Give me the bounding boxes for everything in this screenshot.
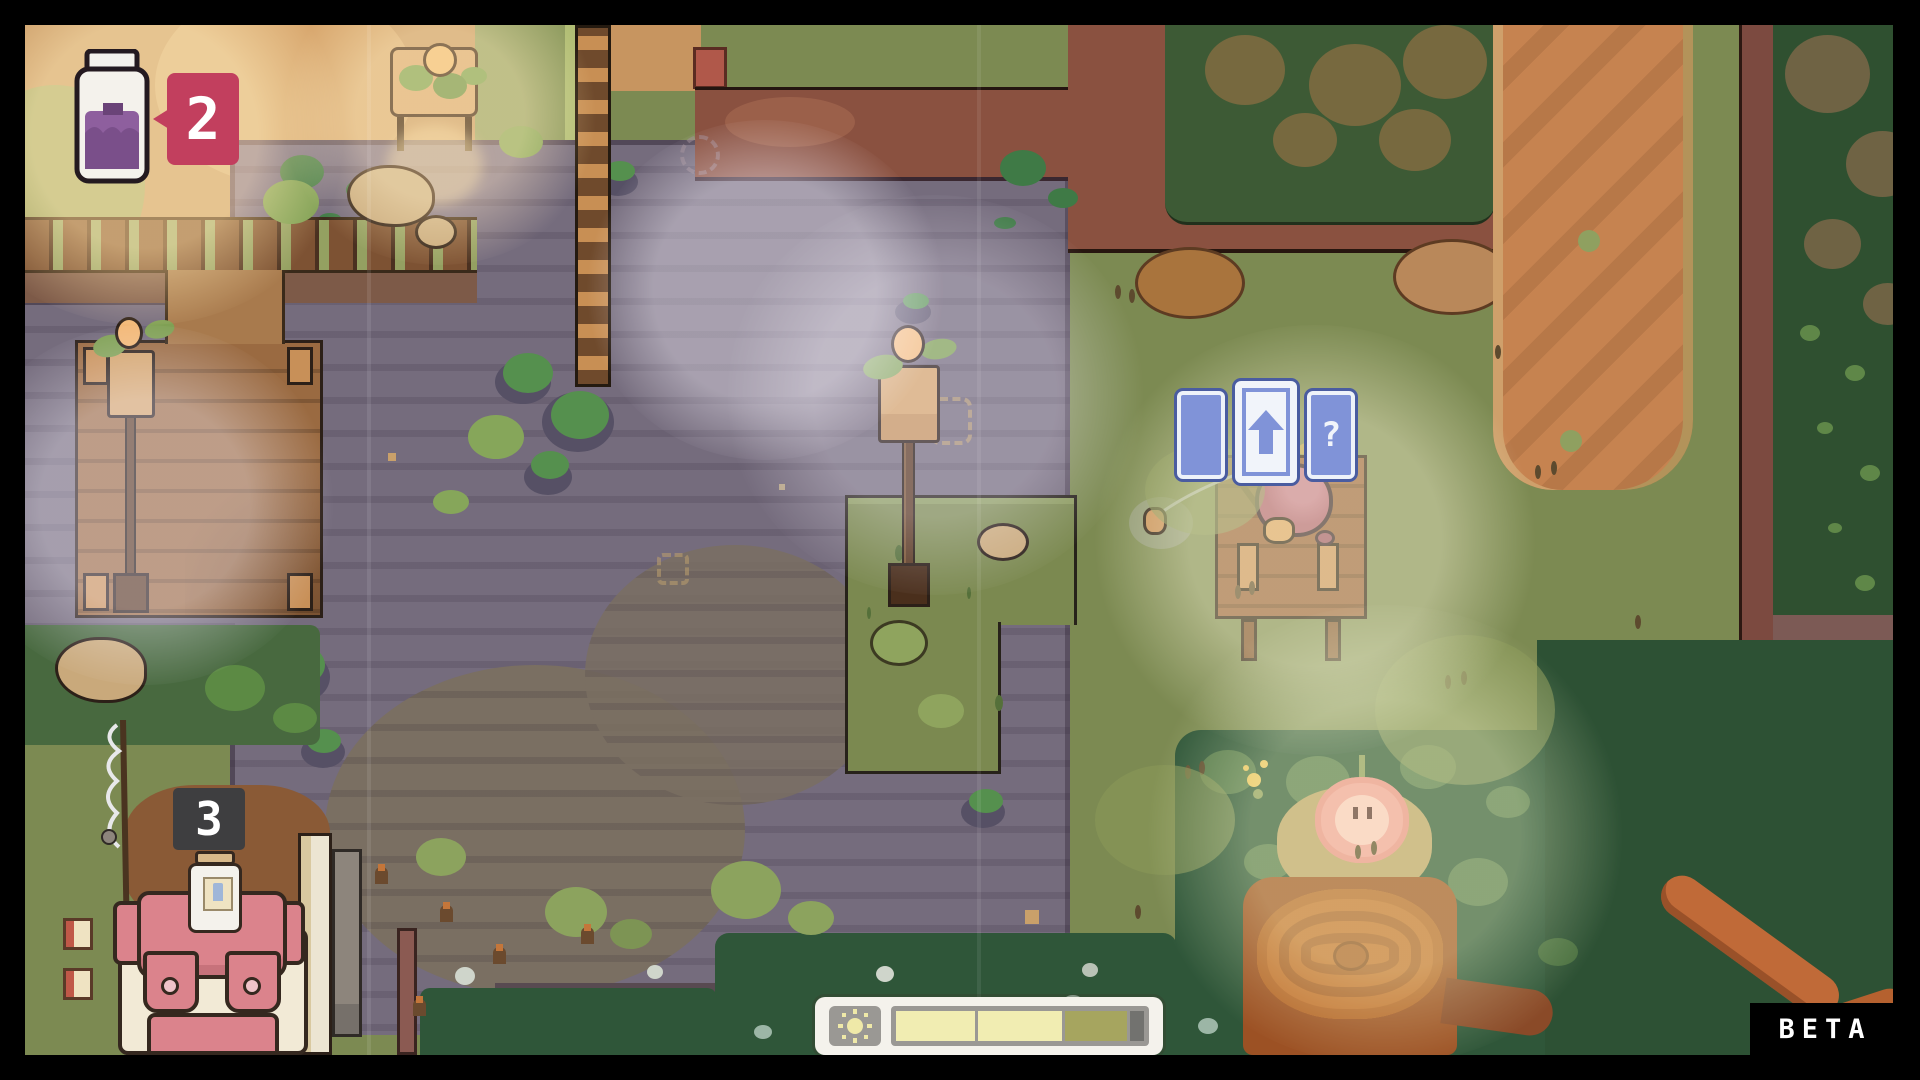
white-flower-dots — [455, 967, 475, 985]
yellow-flower — [1247, 773, 1261, 787]
water-speck — [1025, 910, 1039, 924]
boulder-topleft-small — [415, 215, 457, 249]
planter-peach — [423, 43, 457, 77]
beta-label: BETA — [1771, 1014, 1871, 1045]
character-foot — [1315, 530, 1335, 546]
cliff-strip-right — [1739, 25, 1773, 643]
camp-jar-label-glyph — [213, 883, 223, 901]
game-stage: 2 3 ? — [0, 0, 1920, 1080]
card-prompt: ? — [1173, 377, 1383, 507]
sprout-caps — [378, 864, 385, 871]
stack-marker-count: 3 — [195, 792, 223, 846]
backpack-button-left — [161, 977, 179, 995]
day-progress-fill — [896, 1011, 1144, 1041]
left-dock-path — [165, 270, 285, 344]
day-progress-segment-3 — [1130, 1011, 1144, 1041]
forest-right-clover — [1800, 325, 1820, 341]
gear-tag-2 — [63, 968, 93, 1000]
gear-tag-1 — [63, 918, 93, 950]
day-progress-segment-0 — [896, 1011, 975, 1041]
sun-tile — [829, 1006, 881, 1046]
day-progress-segment-1 — [978, 1011, 1062, 1041]
game-viewport: 2 3 ? — [25, 25, 1893, 1055]
blossom-eyes — [1353, 807, 1358, 819]
fishing-dock-leg-l — [1241, 619, 1257, 661]
grass-tufts-right — [1115, 285, 1121, 299]
dock-post-br — [287, 573, 313, 611]
hedge-bottom-right — [1537, 640, 1893, 1055]
beta-badge: BETA — [1750, 1003, 1893, 1055]
card-blank[interactable] — [1177, 391, 1225, 479]
dirt-patch-right — [1135, 247, 1245, 319]
dock-post-tr — [287, 347, 313, 385]
backpack-button-right — [243, 977, 261, 995]
inventory-toast: 2 — [67, 45, 297, 195]
center-island-top — [845, 495, 1077, 625]
hedge-clover-blobs — [1200, 750, 1256, 794]
mauve-picket — [397, 928, 417, 1055]
backpack-lower-pocket — [147, 1013, 279, 1055]
dock-lamp-pot — [107, 350, 155, 418]
island-seam-fix — [848, 615, 998, 629]
toast-count-badge: 2 — [167, 73, 239, 165]
day-progress-track — [891, 1006, 1149, 1046]
card-question[interactable]: ? — [1307, 391, 1355, 479]
blossom-center — [1335, 795, 1389, 845]
dock-post-bl — [83, 573, 109, 611]
jam-jar-icon — [73, 49, 151, 187]
card-inner-frame — [1242, 388, 1290, 476]
beam-column — [575, 25, 611, 387]
dirt-path-orange — [1493, 25, 1693, 490]
red-crate — [693, 47, 727, 89]
bush-left-bank — [205, 665, 265, 711]
boulder-left — [55, 637, 147, 703]
dock-lamp-flower — [115, 317, 143, 349]
center-lamp-flower — [891, 325, 925, 363]
toast-count: 2 — [186, 85, 221, 153]
fishing-dock-post-r — [1317, 543, 1339, 591]
forest-right-canopies — [1785, 35, 1870, 113]
character-paw-mitt — [1263, 517, 1295, 544]
island-rocks — [977, 523, 1029, 561]
ground-tan-top-mid — [609, 25, 701, 91]
path-grass-dot — [1578, 230, 1600, 252]
center-lamp-base — [888, 563, 930, 607]
stump-knot — [1333, 941, 1369, 971]
day-progress — [815, 997, 1163, 1055]
cliff-top-highlight — [725, 97, 855, 147]
island-clover — [870, 620, 928, 666]
fishing-dock-leg-r — [1325, 619, 1341, 661]
blossom-sprout — [1359, 755, 1365, 777]
forest-right — [1773, 25, 1893, 640]
tree-canopy-blobs — [1205, 35, 1285, 105]
lily-cluster-topright-pond — [1000, 150, 1046, 186]
dock-lamp-base — [113, 573, 149, 613]
lily-pad-cluster — [503, 353, 553, 393]
card-question-glyph: ? — [1321, 415, 1341, 455]
water-sparkle-ring — [680, 135, 720, 175]
hedge-left-small — [420, 988, 717, 1055]
card-up-arrow[interactable] — [1235, 381, 1297, 483]
dock-lamp-pole — [125, 415, 136, 580]
stack-marker: 3 — [173, 788, 245, 850]
badge-tail — [153, 109, 169, 129]
day-progress-segment-2 — [1065, 1011, 1127, 1041]
gray-beam — [332, 849, 362, 1037]
mud-patch-2 — [585, 545, 885, 805]
water-sparkle-square-2 — [657, 553, 689, 585]
sun-icon — [838, 1009, 872, 1043]
bush-cluster-bottom — [545, 887, 607, 937]
